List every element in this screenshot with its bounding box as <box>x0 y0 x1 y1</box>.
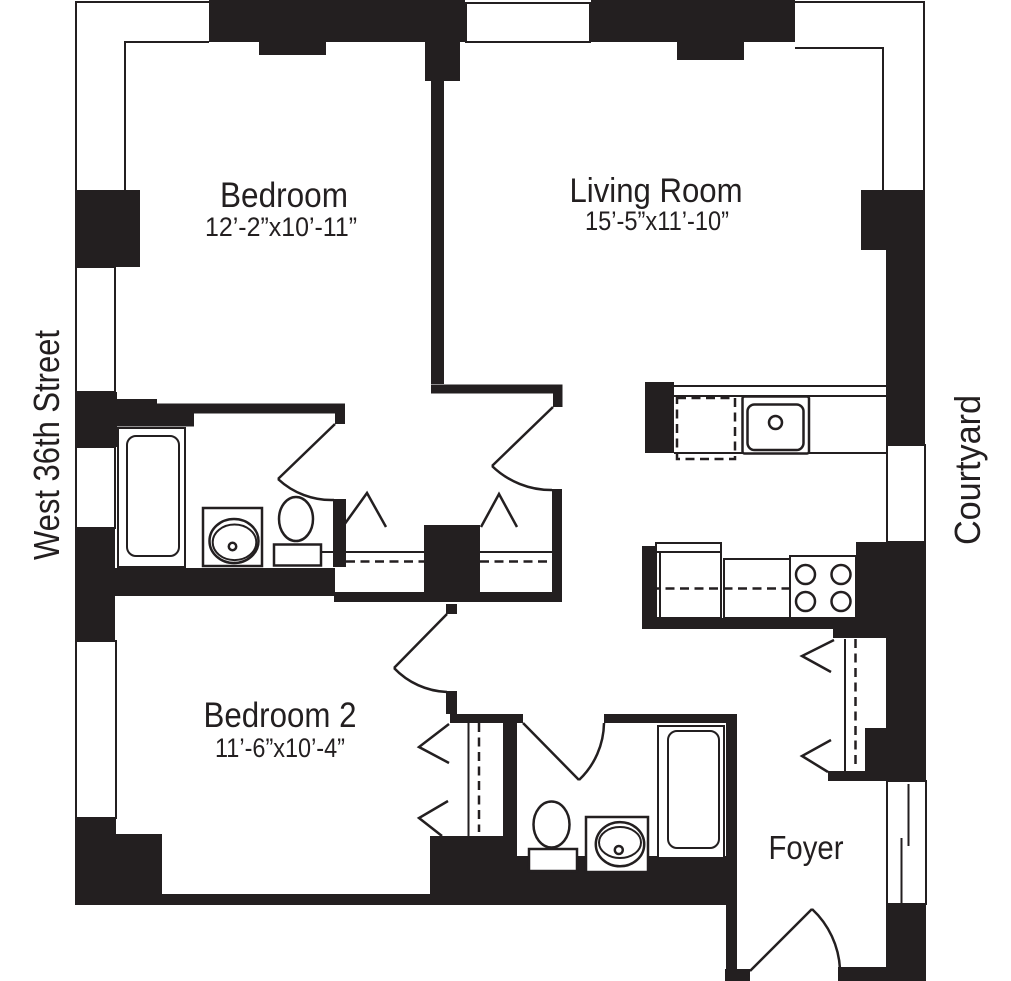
svg-text:West 36th Street: West 36th Street <box>26 330 67 560</box>
svg-text:Bedroom: Bedroom <box>220 176 348 215</box>
svg-text:15’-5”x11’-10”: 15’-5”x11’-10” <box>585 206 729 236</box>
svg-text:12’-2”x10’-11”: 12’-2”x10’-11” <box>205 212 357 242</box>
svg-text:11’-6”x10’-4”: 11’-6”x10’-4” <box>215 733 345 763</box>
svg-text:Foyer: Foyer <box>769 829 844 866</box>
svg-text:Living Room: Living Room <box>570 172 743 210</box>
svg-text:Courtyard: Courtyard <box>947 395 988 545</box>
svg-text:Bedroom 2: Bedroom 2 <box>204 696 357 735</box>
